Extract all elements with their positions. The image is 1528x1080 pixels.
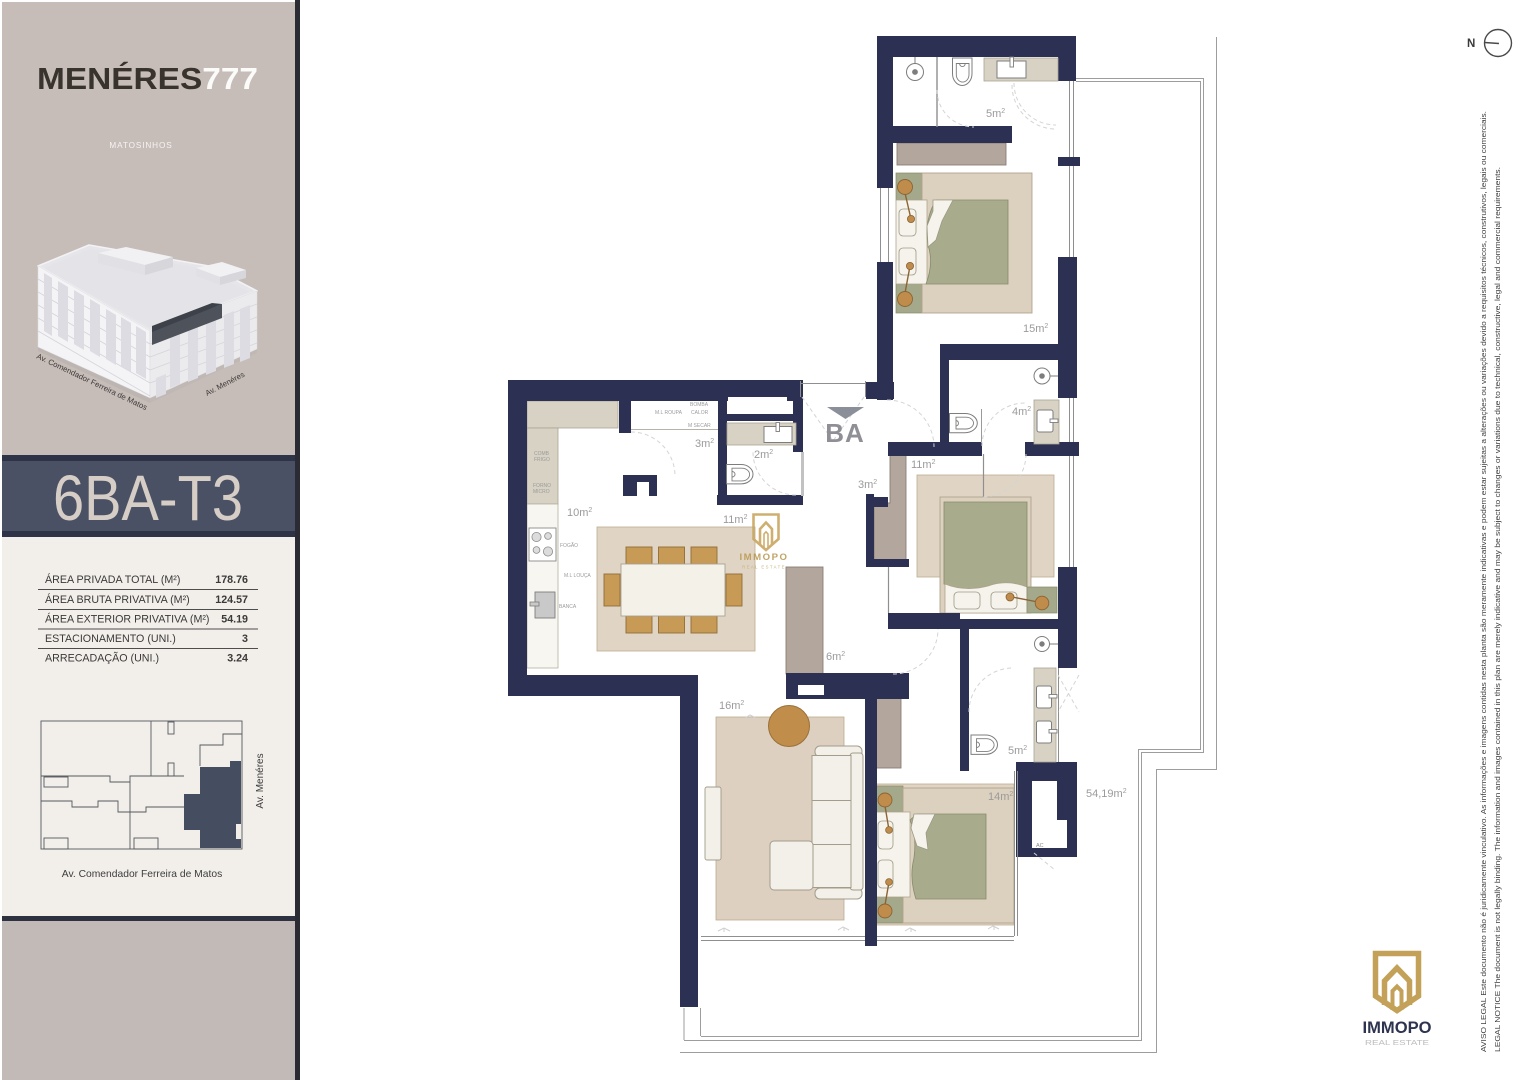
svg-text:IMMOPO: IMMOPO xyxy=(740,552,789,563)
svg-text:3.24: 3.24 xyxy=(227,653,248,665)
svg-text:BA: BA xyxy=(825,418,865,448)
svg-text:M.L LOUÇA: M.L LOUÇA xyxy=(564,573,591,579)
svg-text:M.L ROUPA: M.L ROUPA xyxy=(655,410,683,416)
svg-text:REAL ESTATE: REAL ESTATE xyxy=(1365,1038,1429,1047)
svg-text:REAL ESTATE: REAL ESTATE xyxy=(742,565,786,570)
svg-text:ESTACIONAMENTO (UNI.): ESTACIONAMENTO (UNI.) xyxy=(45,633,176,645)
svg-text:ÁREA PRIVADA TOTAL (M²): ÁREA PRIVADA TOTAL (M²) xyxy=(45,573,180,586)
svg-text:N: N xyxy=(1467,38,1475,50)
svg-text:Av. Menéres: Av. Menéres xyxy=(255,753,266,808)
svg-text:124.57: 124.57 xyxy=(215,594,248,606)
svg-text:ÁREA BRUTA PRIVATIVA (M²): ÁREA BRUTA PRIVATIVA (M²) xyxy=(45,593,190,606)
svg-text:178.76: 178.76 xyxy=(215,574,248,586)
svg-text:6BA-T3: 6BA-T3 xyxy=(53,462,243,534)
svg-text:3: 3 xyxy=(242,633,248,645)
svg-text:LEGAL NOTICE The document is n: LEGAL NOTICE The document is not legally… xyxy=(1493,167,1502,1052)
svg-text:FRIGO: FRIGO xyxy=(534,457,550,463)
svg-text:ÁREA EXTERIOR PRIVATIVA (M²): ÁREA EXTERIOR PRIVATIVA (M²) xyxy=(45,613,210,626)
svg-text:BANCA: BANCA xyxy=(559,604,577,610)
svg-text:ARRECADAÇÃO (UNI.): ARRECADAÇÃO (UNI.) xyxy=(45,652,159,665)
svg-text:54,19m2: 54,19m2 xyxy=(1086,788,1127,800)
svg-text:54.19: 54.19 xyxy=(221,614,248,626)
svg-text:Av. Comendador Ferreira de Mat: Av. Comendador Ferreira de Matos xyxy=(62,869,222,880)
svg-text:MENÉRES777: MENÉRES777 xyxy=(37,61,258,96)
svg-text:MATOSINHOS: MATOSINHOS xyxy=(109,141,172,150)
svg-text:BOMBA: BOMBA xyxy=(690,402,709,408)
svg-text:M SECAR: M SECAR xyxy=(688,423,711,429)
svg-text:FOGÃO: FOGÃO xyxy=(560,542,578,549)
svg-text:MICRO: MICRO xyxy=(533,489,550,495)
svg-text:AC: AC xyxy=(1036,843,1044,849)
svg-text:CALOR: CALOR xyxy=(691,410,709,416)
svg-text:IMMOPO: IMMOPO xyxy=(1363,1019,1432,1037)
svg-text:AVISO LEGAL Este documento não: AVISO LEGAL Este documento não é juridic… xyxy=(1479,111,1488,1052)
